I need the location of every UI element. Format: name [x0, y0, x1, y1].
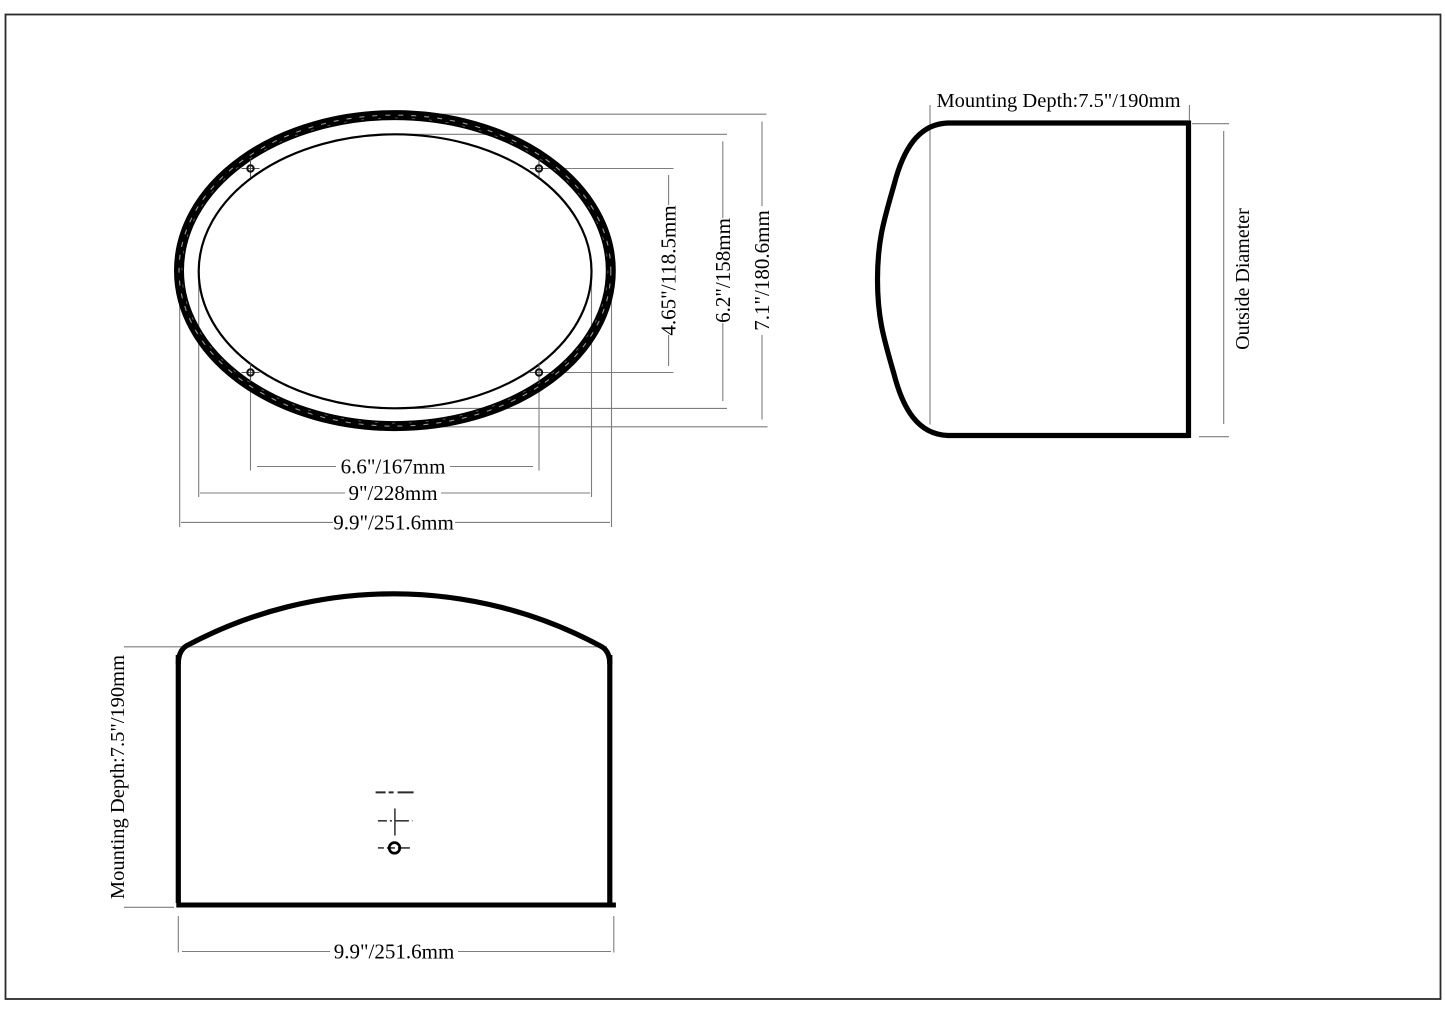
svg-text:9.9"/251.6mm: 9.9"/251.6mm	[334, 940, 455, 964]
svg-text:Outside Diameter: Outside Diameter	[1232, 208, 1254, 350]
svg-text:7.1"/180.6mm: 7.1"/180.6mm	[750, 210, 774, 331]
svg-text:6.2"/158mm: 6.2"/158mm	[711, 218, 735, 323]
svg-text:6.6"/167mm: 6.6"/167mm	[341, 455, 446, 479]
svg-text:Mounting Depth:7.5"/190mm: Mounting Depth:7.5"/190mm	[107, 655, 129, 899]
svg-text:Mounting Depth:7.5"/190mm: Mounting Depth:7.5"/190mm	[936, 90, 1180, 112]
svg-text:4.65"/118.5mm: 4.65"/118.5mm	[657, 205, 681, 335]
svg-text:9.9"/251.6mm: 9.9"/251.6mm	[333, 510, 454, 534]
svg-text:9"/228mm: 9"/228mm	[348, 481, 437, 505]
